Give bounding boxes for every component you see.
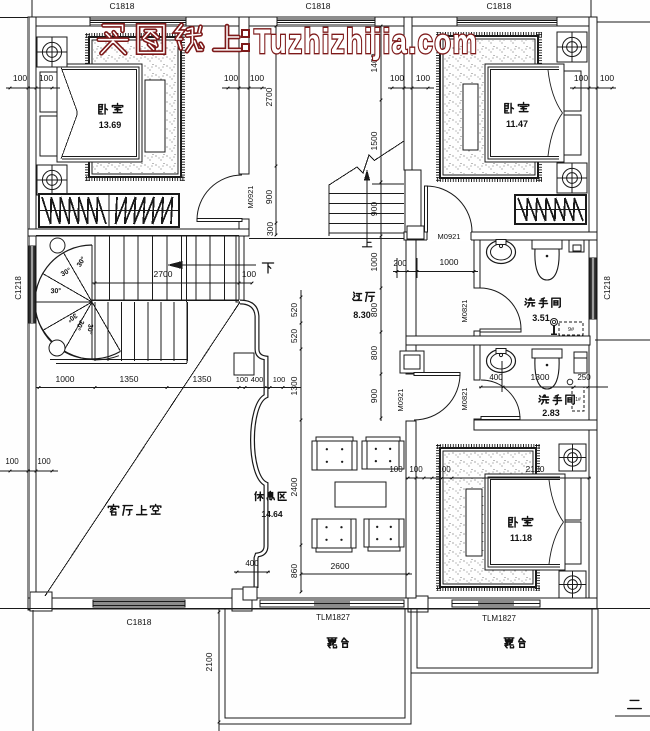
svg-text:M0821: M0821 xyxy=(460,300,469,323)
svg-text:TLM1827: TLM1827 xyxy=(482,614,516,623)
svg-text:C1818: C1818 xyxy=(109,1,134,11)
svg-text:11.18: 11.18 xyxy=(510,533,532,543)
svg-text:100: 100 xyxy=(416,73,430,83)
svg-text:100: 100 xyxy=(600,73,614,83)
svg-text:C1818: C1818 xyxy=(305,1,330,11)
svg-text:1300: 1300 xyxy=(289,376,299,395)
svg-text:1000: 1000 xyxy=(56,374,75,384)
svg-text:2.83: 2.83 xyxy=(542,408,560,418)
svg-text:C1218: C1218 xyxy=(603,276,612,300)
svg-text:100: 100 xyxy=(13,73,27,83)
svg-text:M0921: M0921 xyxy=(396,389,405,412)
svg-text:1350: 1350 xyxy=(120,374,139,384)
svg-text:9#: 9# xyxy=(568,327,575,333)
svg-text:100: 100 xyxy=(242,269,256,279)
svg-text:400: 400 xyxy=(489,373,503,382)
svg-text:100: 100 xyxy=(273,375,286,384)
svg-text:M0921: M0921 xyxy=(246,186,255,209)
svg-text:520: 520 xyxy=(289,303,299,317)
svg-text:2100: 2100 xyxy=(526,464,545,474)
svg-text:C1818: C1818 xyxy=(486,1,511,11)
svg-text:C1818: C1818 xyxy=(126,617,151,627)
svg-text:900: 900 xyxy=(369,202,379,216)
svg-text:100: 100 xyxy=(224,73,238,83)
svg-text:1000: 1000 xyxy=(440,257,459,267)
svg-text:860: 860 xyxy=(289,564,299,578)
svg-text:520: 520 xyxy=(289,329,299,343)
svg-text:800: 800 xyxy=(369,346,379,360)
svg-text:100: 100 xyxy=(5,457,19,466)
svg-text:400: 400 xyxy=(251,375,264,384)
svg-text:2700: 2700 xyxy=(154,269,173,279)
svg-text:M0821: M0821 xyxy=(460,388,469,411)
svg-text:900: 900 xyxy=(264,190,274,204)
svg-text:2600: 2600 xyxy=(331,561,350,571)
svg-text:100: 100 xyxy=(390,73,404,83)
svg-text:100: 100 xyxy=(389,465,403,474)
svg-text:300: 300 xyxy=(265,222,275,236)
svg-text:100: 100 xyxy=(437,465,451,474)
svg-text:3.51: 3.51 xyxy=(532,313,550,323)
svg-text:30°: 30° xyxy=(50,287,61,296)
svg-text:1300: 1300 xyxy=(531,372,550,382)
svg-text:100: 100 xyxy=(574,73,588,83)
svg-text:900: 900 xyxy=(369,389,379,403)
svg-text:14.64: 14.64 xyxy=(261,509,283,519)
svg-text:100: 100 xyxy=(39,73,53,83)
svg-text:C1218: C1218 xyxy=(14,276,23,300)
svg-text:250: 250 xyxy=(577,373,591,382)
svg-text:400: 400 xyxy=(245,559,259,568)
svg-text:1500: 1500 xyxy=(369,131,379,150)
svg-text:13.69: 13.69 xyxy=(99,120,122,130)
svg-text:2400: 2400 xyxy=(289,477,299,496)
svg-text:30°: 30° xyxy=(86,324,95,335)
svg-text:1000: 1000 xyxy=(369,252,379,271)
svg-text:200: 200 xyxy=(393,259,407,268)
svg-text:100: 100 xyxy=(250,73,264,83)
svg-text:M0921: M0921 xyxy=(438,232,461,241)
svg-text:11.47: 11.47 xyxy=(506,119,528,129)
svg-text:100: 100 xyxy=(37,457,51,466)
svg-text:Tuzhizhijia.com: Tuzhizhijia.com xyxy=(254,22,478,61)
svg-text:1#: 1# xyxy=(575,397,581,403)
svg-text:8.30: 8.30 xyxy=(353,310,371,320)
svg-text:100: 100 xyxy=(236,375,249,384)
svg-text:TLM1827: TLM1827 xyxy=(316,613,350,622)
svg-text:100: 100 xyxy=(409,465,423,474)
svg-text:2100: 2100 xyxy=(204,652,214,671)
svg-text:2700: 2700 xyxy=(264,87,274,106)
svg-text:1350: 1350 xyxy=(193,374,212,384)
